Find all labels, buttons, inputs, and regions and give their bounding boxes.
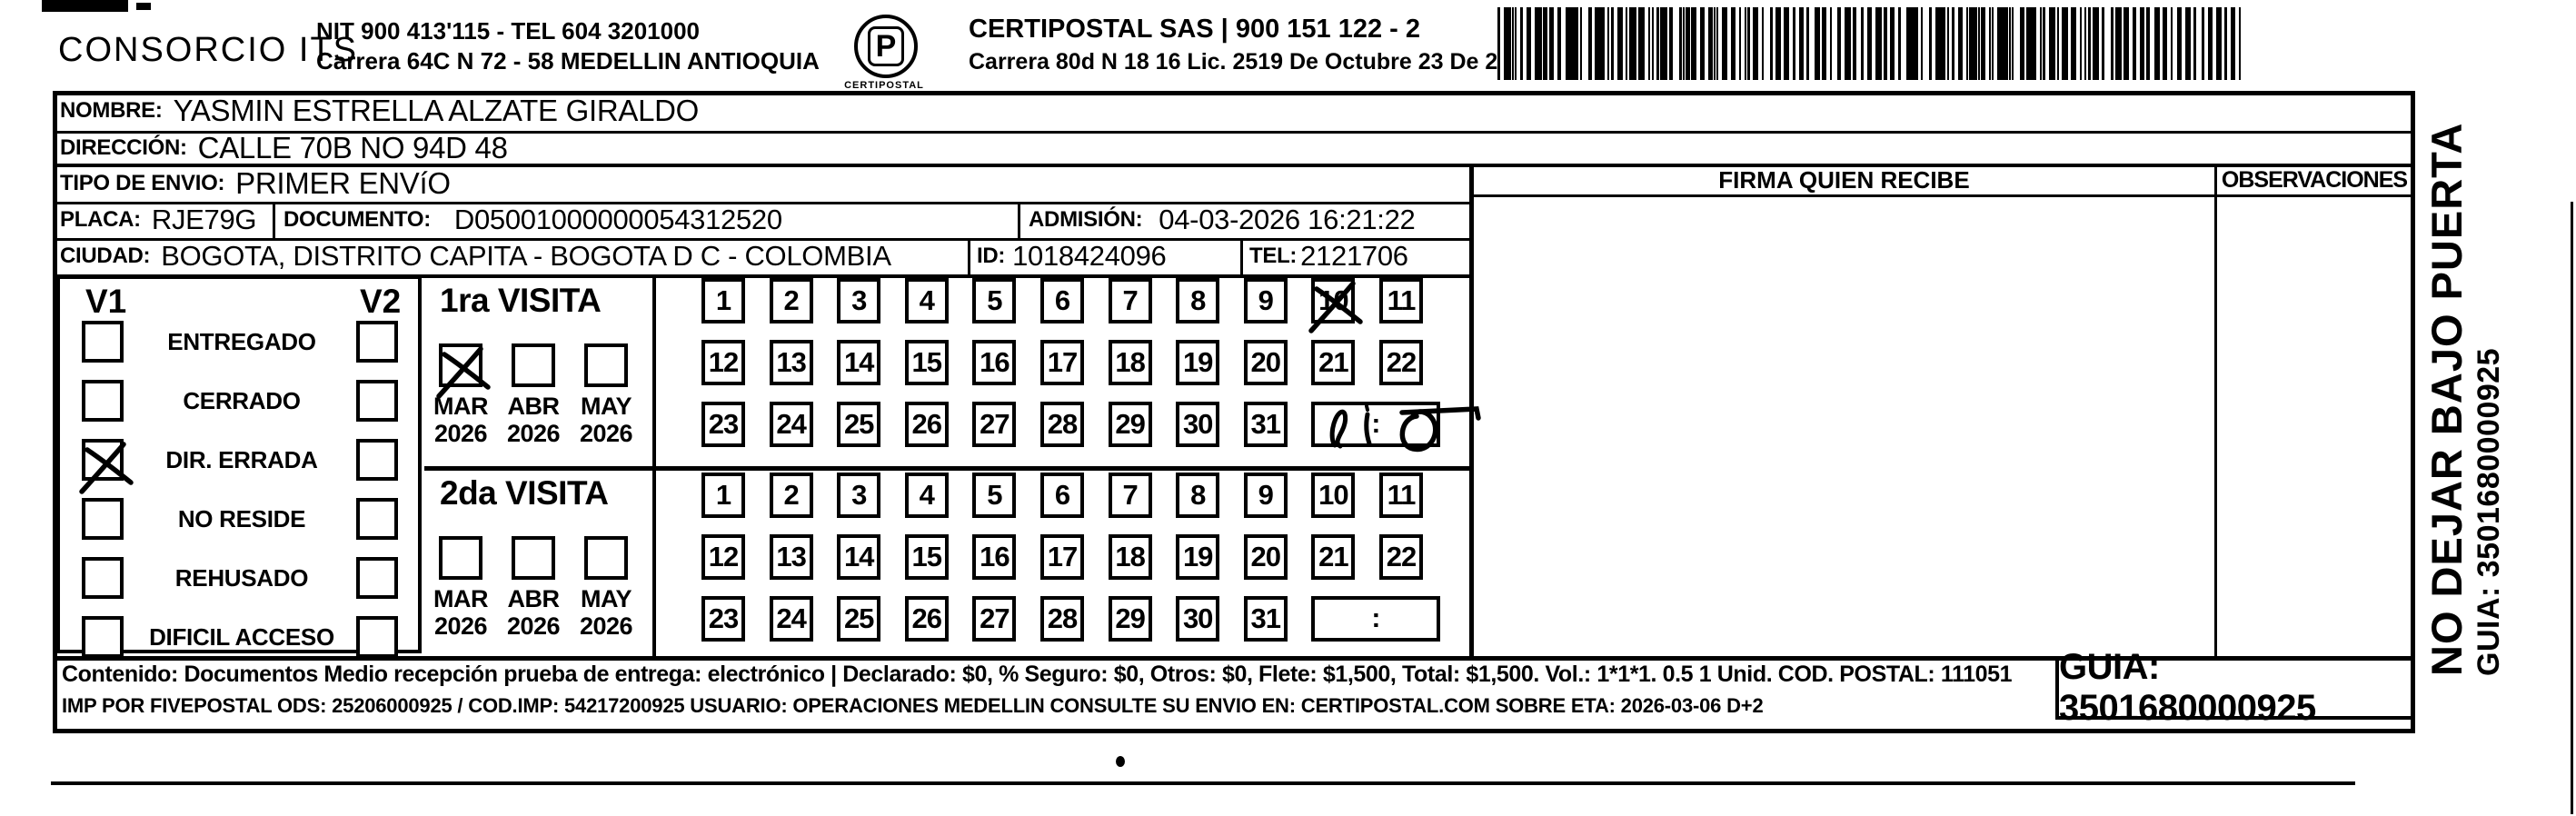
day-cell-22: 22 [1379,534,1423,580]
day-cell-7: 7 [1109,278,1152,323]
v1-checkbox [82,498,124,540]
v2-checkbox [356,616,398,658]
documento-value: D05001000000054312520 [454,204,782,236]
company-name: CONSORCIO ITS [58,31,358,70]
day-cell-24: 24 [770,402,813,447]
v1-column-header: V1 [85,283,126,321]
day-cell-18: 18 [1109,340,1152,385]
certipostal-company-line: CERTIPOSTAL SAS | 900 151 122 - 2 [969,13,1536,45]
day-cell-25: 25 [837,596,880,642]
day-cell-13: 13 [770,534,813,580]
day-cell-10: 10 [1311,278,1355,323]
admision-value: 04-03-2026 16:21:22 [1159,204,1415,236]
status-option-label: CERRADO [133,378,351,423]
day-cell-27: 27 [972,402,1016,447]
tel-value: 2121706 [1300,240,1408,273]
month-checkbox-mar [439,536,482,580]
scan-artifact-bar [42,0,128,12]
tel-cell: TEL: 2121706 [1249,238,1408,274]
v2-checkbox [356,439,398,481]
month-label: ABR [497,585,570,613]
day-cell-19: 19 [1176,534,1219,580]
month-year: 2026 [570,420,642,448]
documento-cell: DOCUMENTO: D05001000000054312520 [283,202,782,238]
day-cell-8: 8 [1176,473,1219,518]
day-cell-12: 12 [701,340,745,385]
month-label: ABR [497,393,570,421]
day-cell-9: 9 [1244,278,1288,323]
day-cell-20: 20 [1244,340,1288,385]
tipo-envio-label: TIPO DE ENVIO: [60,171,224,196]
side-note-warning: NO DEJAR BAJO PUERTA [2422,116,2472,676]
day-cell-23: 23 [701,596,745,642]
id-label: ID: [977,244,1005,269]
day-cell-30: 30 [1176,596,1219,642]
v2-checkbox [356,557,398,599]
status-option-label: DIFICIL ACCESO [133,614,351,660]
v2-checkbox [356,498,398,540]
day-cell-24: 24 [770,596,813,642]
day-cell-15: 15 [905,340,949,385]
v2-column-header: V2 [360,283,401,321]
day-cell-6: 6 [1040,278,1084,323]
ciudad-label: CIUDAD: [60,244,150,269]
footer-content-line: Contenido: Documentos Medio recepción pr… [62,662,2012,688]
day-cell-11: 11 [1379,278,1423,323]
month-label: MAR [424,585,497,613]
status-row: REHUSADO [60,555,418,606]
tipo-envio-value: PRIMER ENVíO [235,166,451,201]
admision-cell: ADMISIÓN: 04-03-2026 16:21:22 [1029,202,1415,238]
status-row: DIR. ERRADA [60,437,418,488]
day-cell-14: 14 [837,534,880,580]
v2-checkbox [356,321,398,363]
firma-header: FIRMA QUIEN RECIBE [1474,165,2214,194]
day-cell-7: 7 [1109,473,1152,518]
month-checkbox-mar [439,343,482,387]
day-cell-30: 30 [1176,402,1219,447]
scan-artifact-dot [1116,756,1125,767]
status-checkbox-panel: V1 V2 ENTREGADOCERRADODIR. ERRADANO RESI… [56,275,422,653]
day-cell-6: 6 [1040,473,1084,518]
day-cell-21: 21 [1311,340,1355,385]
status-option-label: NO RESIDE [133,496,351,542]
handwritten-time-note [1315,405,1444,451]
day-cell-17: 17 [1040,534,1084,580]
day-cell-13: 13 [770,340,813,385]
day-cell-3: 3 [837,278,880,323]
scanned-delivery-label: CONSORCIO ITS NIT 900 413'115 - TEL 604 … [0,0,2576,816]
day-cell-27: 27 [972,596,1016,642]
day-cell-2: 2 [770,473,813,518]
status-option-label: REHUSADO [133,555,351,601]
day-cell-22: 22 [1379,340,1423,385]
time-box: : [1311,402,1440,447]
day-cell-4: 4 [905,278,949,323]
v1-checkbox [82,439,124,481]
day-cell-31: 31 [1244,596,1288,642]
scan-edge-line [2571,202,2573,814]
scan-bottom-line [51,781,2355,785]
day-cell-20: 20 [1244,534,1288,580]
tipo-envio-row: TIPO DE ENVIO: PRIMER ENVíO [60,165,451,202]
day-cell-5: 5 [972,278,1016,323]
certipostal-contact-block: CERTIPOSTAL SAS | 900 151 122 - 2 Carrer… [969,13,1536,78]
side-note-guia: GUIA: 3501680000925 [2472,116,2507,676]
placa-label: PLACA: [60,207,141,233]
direccion-value: CALLE 70B NO 94D 48 [198,131,508,165]
nombre-row: NOMBRE: YASMIN ESTRELLA ALZATE GIRALDO [60,91,699,131]
v2-checkbox [356,380,398,422]
v1-checkbox [82,557,124,599]
day-cell-11: 11 [1379,473,1423,518]
id-cell: ID: 1018424096 [977,238,1167,274]
first-visit-title: 1ra VISITA [440,282,601,320]
shipment-barcode [1497,7,2244,80]
day-cell-29: 29 [1109,596,1152,642]
month-checkbox-abr [512,536,555,580]
day-cell-29: 29 [1109,402,1152,447]
sender-nit-line: NIT 900 413'115 - TEL 604 3201000 [316,16,820,46]
ciudad-value: BOGOTA, DISTRITO CAPITA - BOGOTA D C - C… [161,240,890,273]
month-label: MAY [570,393,642,421]
id-value: 1018424096 [1012,240,1166,273]
month-label: MAR [424,393,497,421]
day-cell-5: 5 [972,473,1016,518]
day-cell-12: 12 [701,534,745,580]
day-cell-3: 3 [837,473,880,518]
second-visit-title: 2da VISITA [440,474,609,512]
day-cell-17: 17 [1040,340,1084,385]
day-cell-2: 2 [770,278,813,323]
time-box: : [1311,596,1440,642]
day-cell-15: 15 [905,534,949,580]
month-year: 2026 [570,612,642,641]
month-year: 2026 [424,420,497,448]
nombre-value: YASMIN ESTRELLA ALZATE GIRALDO [174,94,699,128]
firma-signature-area [1474,197,2214,656]
day-cell-21: 21 [1311,534,1355,580]
day-cell-28: 28 [1040,402,1084,447]
side-note: NO DEJAR BAJO PUERTA GUIA: 3501680000925 [2422,116,2507,676]
day-cell-26: 26 [905,596,949,642]
v1-checkbox [82,380,124,422]
sender-contact-block: NIT 900 413'115 - TEL 604 3201000 Carrer… [316,16,820,76]
certipostal-license-line: Carrera 80d N 18 16 Lic. 2519 De Octubre… [969,45,1536,78]
direccion-label: DIRECCIÓN: [60,135,187,161]
day-cell-23: 23 [701,402,745,447]
day-cell-19: 19 [1176,340,1219,385]
day-cell-9: 9 [1244,473,1288,518]
month-year: 2026 [497,420,570,448]
admision-label: ADMISIÓN: [1029,207,1142,233]
day-cell-25: 25 [837,402,880,447]
day-cell-31: 31 [1244,402,1288,447]
month-checkbox-may [584,536,628,580]
first-visit-day-grid: 1234567891011121314151617181920212223242… [701,278,1465,453]
direccion-row: DIRECCIÓN: CALLE 70B NO 94D 48 [60,131,508,165]
day-cell-16: 16 [972,534,1016,580]
status-option-label: DIR. ERRADA [133,437,351,483]
status-row: ENTREGADO [60,319,418,370]
day-cell-18: 18 [1109,534,1152,580]
certipostal-logo-glyph: P [868,26,905,66]
handwritten-x-mark [1308,274,1364,331]
month-checkbox-may [584,343,628,387]
footer-imp-line: IMP POR FIVEPOSTAL ODS: 25206000925 / CO… [62,694,1763,718]
day-cell-26: 26 [905,402,949,447]
tel-label: TEL: [1249,244,1297,269]
day-cell-8: 8 [1176,278,1219,323]
status-row: DIFICIL ACCESO [60,614,418,665]
month-label: MAY [570,585,642,613]
month-year: 2026 [497,612,570,641]
day-cell-10: 10 [1311,473,1355,518]
sender-address-line: Carrera 64C N 72 - 58 MEDELLIN ANTIOQUIA [316,46,820,76]
nombre-label: NOMBRE: [60,98,163,124]
guia-number-box: GUIA: 3501680000925 [2055,656,2415,720]
v1-checkbox [82,616,124,658]
certipostal-logo-icon: P [854,15,918,78]
month-checkbox-abr [512,343,555,387]
placa-value: RJE79G [152,204,256,236]
handwritten-x-mark [435,340,492,396]
scan-artifact-tick [136,3,151,10]
observaciones-header: OBSERVACIONES [2217,165,2412,194]
handwritten-x-mark [78,435,134,492]
day-cell-1: 1 [701,278,745,323]
certipostal-logo-caption: CERTIPOSTAL [825,80,943,91]
documento-label: DOCUMENTO: [283,207,431,233]
day-cell-14: 14 [837,340,880,385]
day-cell-1: 1 [701,473,745,518]
day-cell-28: 28 [1040,596,1084,642]
month-year: 2026 [424,612,497,641]
placa-cell: PLACA: RJE79G [60,202,256,238]
status-row: NO RESIDE [60,496,418,547]
second-visit-day-grid: 1234567891011121314151617181920212223242… [701,473,1465,647]
day-cell-4: 4 [905,473,949,518]
ciudad-cell: CIUDAD: BOGOTA, DISTRITO CAPITA - BOGOTA… [60,238,891,274]
v1-checkbox [82,321,124,363]
status-row: CERRADO [60,378,418,429]
observaciones-area [2217,197,2411,656]
day-cell-16: 16 [972,340,1016,385]
status-option-label: ENTREGADO [133,319,351,364]
